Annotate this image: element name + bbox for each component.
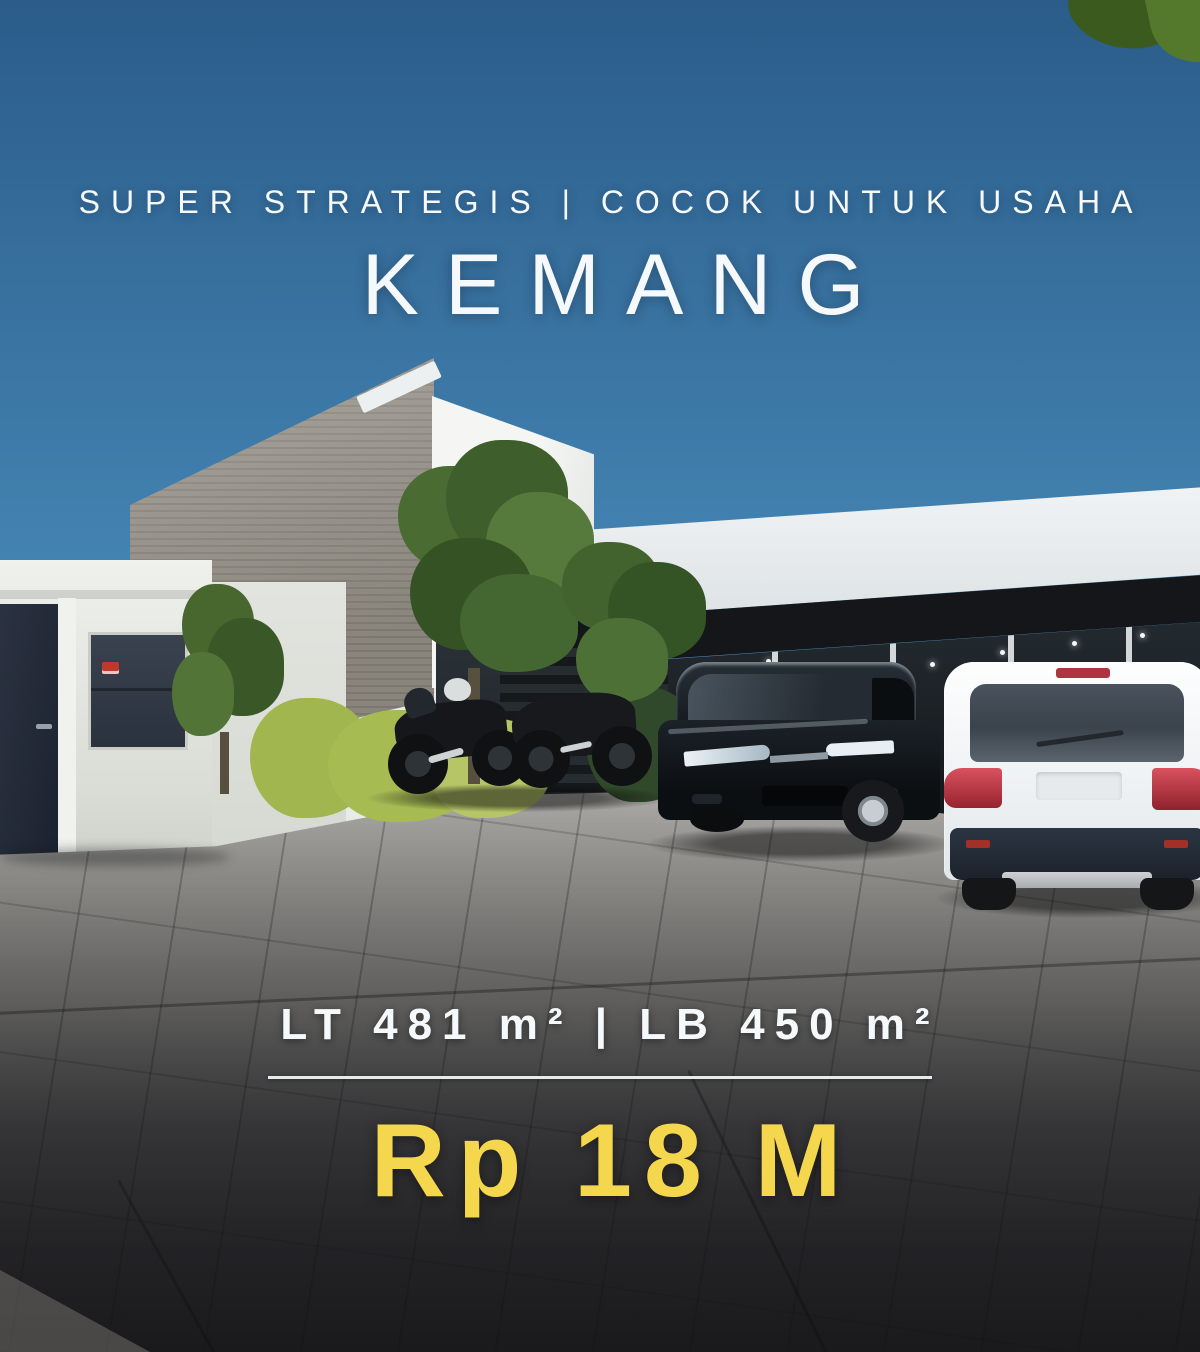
suv-reflector xyxy=(1164,840,1188,848)
motorcycle-wheel xyxy=(592,726,652,786)
interior-light xyxy=(1000,650,1005,655)
motorcycle-wheel xyxy=(512,730,570,788)
suv-plate-recess xyxy=(1036,772,1122,800)
suv-rear-window xyxy=(970,684,1184,762)
location-title: KEMANG xyxy=(0,236,1200,335)
suv-skid-plate xyxy=(1002,872,1152,888)
suv-reflector xyxy=(966,840,990,848)
door-handle xyxy=(36,724,52,729)
garage-parapet-shadow xyxy=(0,590,212,599)
divider-line xyxy=(268,1076,932,1079)
window-fold-line xyxy=(91,688,179,691)
motorcycle-wheel xyxy=(388,734,448,794)
suv-brake-light xyxy=(1056,668,1110,678)
headline-text: SUPER STRATEGIS | COCOK UNTUK USAHA xyxy=(0,184,1200,221)
suv-wheel xyxy=(1140,878,1194,910)
tree-foliage xyxy=(576,618,668,702)
interior-light xyxy=(1140,633,1145,638)
interior-light xyxy=(1072,641,1077,646)
helmet xyxy=(444,678,471,701)
tree-foliage xyxy=(172,652,234,736)
tree-foliage xyxy=(460,574,578,672)
suv-taillight xyxy=(944,768,1002,808)
garage-base-shadow xyxy=(0,848,230,866)
mpv-fog-light xyxy=(692,794,722,804)
tree-trunk xyxy=(220,732,229,794)
red-sticker xyxy=(102,662,119,674)
garage-door xyxy=(0,604,58,856)
mpv-front-wheel xyxy=(690,806,744,832)
mpv-shadow xyxy=(648,826,954,862)
mpv-alloy-wheel xyxy=(842,780,904,842)
price-text: Rp 18 M xyxy=(0,1102,1200,1221)
garage-door-frame xyxy=(58,598,76,858)
land-building-specs: LT 481 m² | LB 450 m² xyxy=(0,1000,1200,1050)
mpv-lower-grille xyxy=(762,786,848,806)
suv-wheel xyxy=(962,878,1016,910)
property-listing-poster: SUPER STRATEGIS | COCOK UNTUK USAHA KEMA… xyxy=(0,0,1200,1352)
suv-taillight xyxy=(1152,768,1200,810)
interior-light xyxy=(930,662,935,667)
